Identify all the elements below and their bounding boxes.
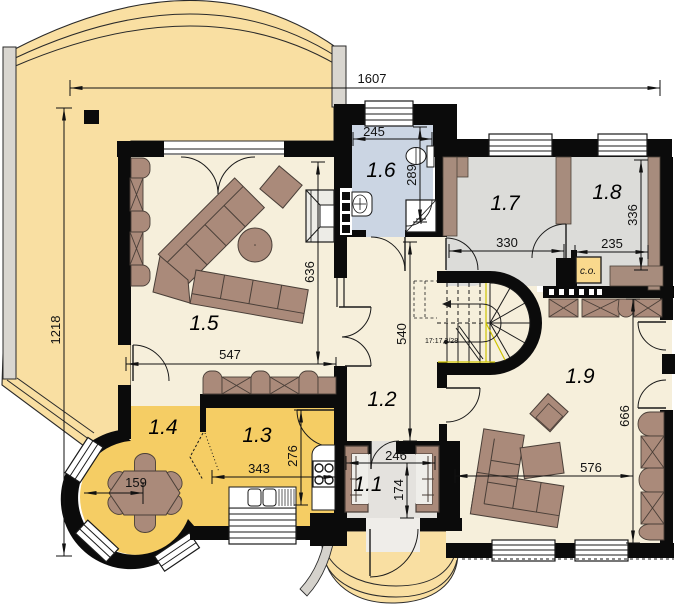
svg-text:1.5: 1.5 xyxy=(189,312,219,335)
svg-text:336: 336 xyxy=(625,204,640,226)
svg-text:1.1: 1.1 xyxy=(353,473,382,496)
svg-text:1.4: 1.4 xyxy=(148,416,177,439)
svg-text:330: 330 xyxy=(496,235,518,250)
svg-text:636: 636 xyxy=(302,261,317,283)
svg-text:235: 235 xyxy=(601,236,623,251)
svg-text:245: 245 xyxy=(363,124,385,139)
svg-text:576: 576 xyxy=(580,460,602,475)
svg-text:1607: 1607 xyxy=(358,71,387,86)
svg-text:540: 540 xyxy=(394,323,409,345)
svg-text:1.9: 1.9 xyxy=(565,365,595,388)
svg-text:666: 666 xyxy=(617,405,632,427)
svg-text:1.2: 1.2 xyxy=(367,388,397,411)
svg-text:1.3: 1.3 xyxy=(242,424,272,447)
svg-text:246: 246 xyxy=(385,448,407,463)
svg-text:174: 174 xyxy=(391,479,406,501)
svg-text:c.o.: c.o. xyxy=(580,266,596,277)
svg-text:547: 547 xyxy=(219,347,241,362)
svg-text:1.7: 1.7 xyxy=(490,192,521,215)
svg-text:17:17,3/28: 17:17,3/28 xyxy=(425,338,458,345)
svg-text:289: 289 xyxy=(404,164,419,186)
svg-text:1218: 1218 xyxy=(48,316,63,345)
svg-text:343: 343 xyxy=(248,461,270,476)
svg-text:159: 159 xyxy=(125,475,147,490)
svg-text:1.6: 1.6 xyxy=(366,159,396,182)
svg-text:1.8: 1.8 xyxy=(592,181,622,204)
svg-text:276: 276 xyxy=(285,445,300,467)
